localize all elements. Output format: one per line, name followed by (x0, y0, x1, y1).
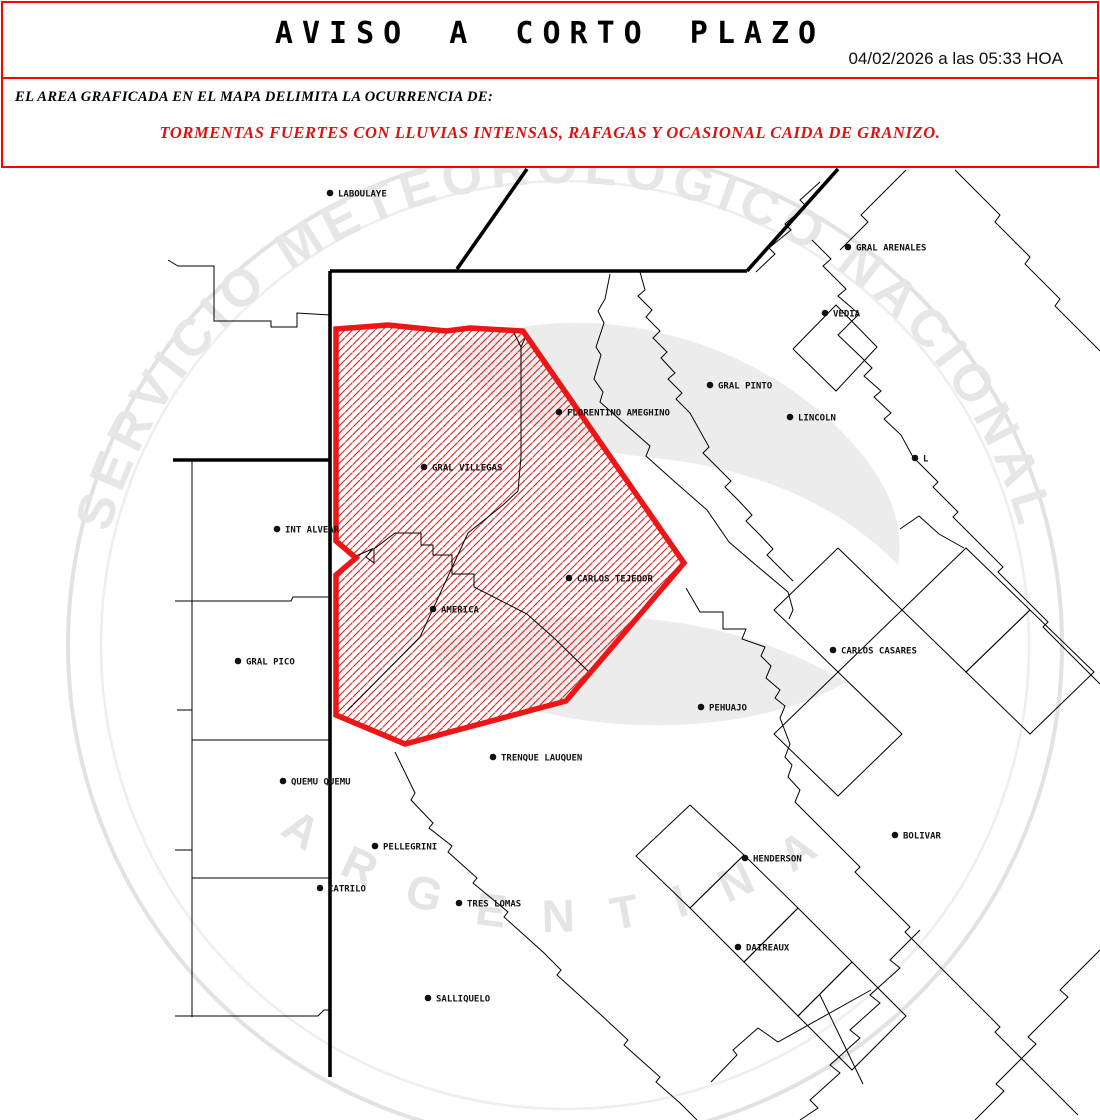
watermark-bottom-text: ARGENTINA (273, 799, 857, 943)
place-label: INT ALVEAR (285, 526, 340, 536)
district-boundary (900, 516, 964, 548)
place-dot (892, 832, 899, 839)
place-dot (787, 414, 794, 421)
district-boundary (966, 610, 1094, 734)
place-label: SALLIQUELO (436, 995, 491, 1005)
alert-hazard-text: TORMENTAS FUERTES CON LLUVIAS INTENSAS, … (3, 123, 1097, 143)
place-label: GRAL PICO (246, 658, 295, 668)
place-dot (698, 704, 705, 711)
district-boundary (175, 597, 330, 601)
alert-banner: EL AREA GRAFICADA EN EL MAPA DELIMITA LA… (1, 77, 1099, 168)
page-title: AVISO A CORTO PLAZO (3, 3, 1097, 51)
place-label: HENDERSON (753, 855, 802, 865)
place-label: TRENQUE LAUQUEN (501, 754, 582, 764)
district-boundary (798, 962, 906, 1070)
place-dot (327, 190, 334, 197)
place-dot (566, 575, 573, 582)
place-label: CARLOS CASARES (841, 647, 917, 657)
district-boundary (902, 548, 1030, 672)
place-label: L (923, 455, 929, 465)
map-canvas: SERVICIO METEOROLÓGICO NACIONAL ARGENTIN… (0, 168, 1100, 1120)
district-boundary (820, 995, 863, 1084)
district-boundary (744, 908, 852, 1016)
place-dot (317, 885, 324, 892)
place-dot (912, 455, 919, 462)
district-boundary (711, 990, 871, 1082)
place-label: FLORENTINO AMEGHINO (567, 409, 671, 419)
place-label: CARLOS TEJEDOR (577, 575, 653, 585)
district-boundary (800, 930, 920, 1120)
place-dot (822, 310, 829, 317)
place-dot (430, 606, 437, 613)
district-boundary (175, 1010, 330, 1016)
place-label: TRES LOMAS (467, 900, 521, 910)
place-label: BOLIVAR (903, 832, 942, 842)
place-dot (421, 464, 428, 471)
place-dot (556, 409, 563, 416)
place-dot (830, 647, 837, 654)
alert-intro-text: EL AREA GRAFICADA EN EL MAPA DELIMITA LA… (15, 89, 493, 106)
place-label: LABOULAYE (338, 190, 387, 200)
district-boundary (955, 170, 1100, 351)
place-dot (456, 900, 463, 907)
place-label: GRAL VILLEGAS (432, 464, 502, 474)
place-dot (235, 658, 242, 665)
place-dot (845, 244, 852, 251)
place-label: VEDIA (833, 310, 861, 320)
place-dot (742, 855, 749, 862)
place-label: CATRILO (328, 885, 367, 895)
place-dot (707, 382, 714, 389)
title-box: AVISO A CORTO PLAZO 04/02/2026 a las 05:… (1, 1, 1099, 79)
district-boundary (975, 950, 1100, 1120)
place-label: QUEMU QUEMU (291, 778, 351, 788)
place-label: DAIREAUX (746, 944, 790, 954)
place-label: GRAL PINTO (718, 382, 773, 392)
place-label: LINCOLN (798, 414, 836, 424)
place-label: AMERICA (441, 606, 480, 616)
place-dot (372, 843, 379, 850)
place-dot (425, 995, 432, 1002)
place-label: PEHUAJO (709, 704, 748, 714)
place-label: GRAL ARENALES (856, 244, 926, 254)
place-dot (490, 754, 497, 761)
place-dot (280, 778, 287, 785)
place-dot (274, 526, 281, 533)
issue-datetime: 04/02/2026 a las 05:33 HOA (848, 49, 1063, 69)
place-dot (735, 944, 742, 951)
place-label: PELLEGRINI (383, 843, 437, 853)
